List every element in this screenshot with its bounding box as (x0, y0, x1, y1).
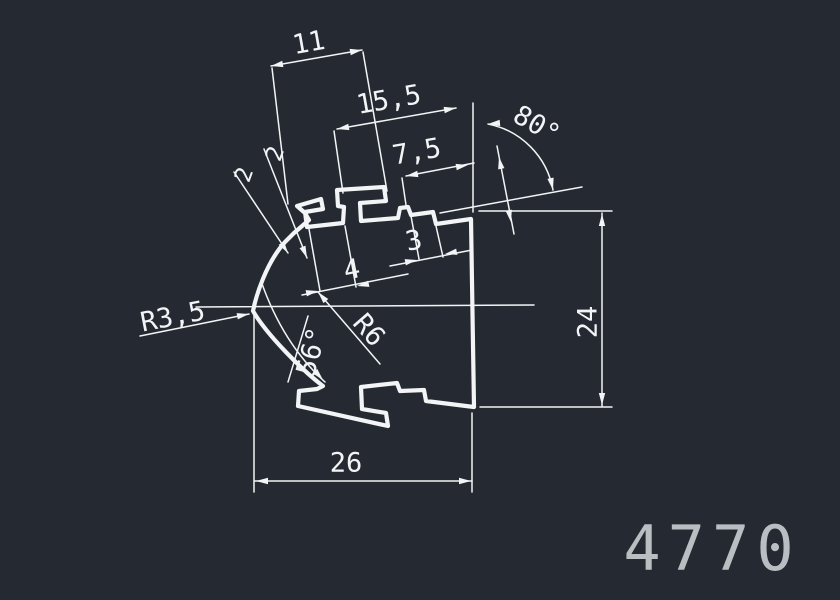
part-number: 4770 (623, 512, 800, 585)
technical-drawing-canvas: 11 15,5 7,5 2 2 4 3 80° 56° R6 R3,5 24 2… (0, 0, 840, 600)
dim-56-label: 56° (291, 324, 334, 379)
dim-11-arrow-right (350, 47, 363, 55)
dim-155-arrow-left (336, 124, 349, 132)
dim-80-arc-arrow-end (547, 178, 556, 191)
dim-75-label: 7,5 (390, 133, 443, 172)
dim-2b-label: 2 (261, 143, 290, 165)
dim-26-label: 26 (330, 448, 363, 479)
cad-viewport: { "canvas": { "background_color": "#252a… (0, 0, 840, 600)
dim-3-ext-right (436, 226, 443, 257)
dim-75-ext-left (402, 178, 406, 205)
dim-155-ext-left (334, 131, 343, 193)
dim-24-arrow-bottom (599, 393, 605, 405)
dim-155-arrow-right (444, 105, 457, 113)
dim-11-label: 11 (290, 25, 327, 61)
dim-4-ext-left (309, 229, 320, 291)
dim-24-label: 24 (573, 306, 604, 339)
dim-2a-line (234, 172, 288, 253)
dim-2b-arrow (300, 246, 310, 260)
dim-75-arrow-left (405, 171, 418, 179)
dim-80-label: 80° (508, 100, 566, 151)
dim-155-label: 15,5 (354, 79, 423, 121)
dim-26-arrow-right (459, 478, 471, 484)
leader-r35-arrow (237, 311, 250, 320)
dim-3-line (390, 250, 472, 266)
dim-2a-label: 2 (230, 164, 259, 186)
dim-80-ext-face (440, 187, 582, 213)
dim-24-arrow-top (599, 214, 605, 226)
dim-26-arrow-left (256, 478, 268, 484)
dim-3-label: 3 (403, 224, 425, 258)
tip-horizontal-reference-line (196, 305, 534, 307)
dim-r6-label: R6 (346, 308, 391, 353)
dim-11-ext-left (272, 68, 288, 204)
dim-4-label: 4 (341, 253, 363, 287)
dim-r35-label: R3,5 (138, 296, 208, 339)
dim-75-arrow-right (456, 162, 469, 170)
dim-3-arrow-right (444, 249, 457, 258)
